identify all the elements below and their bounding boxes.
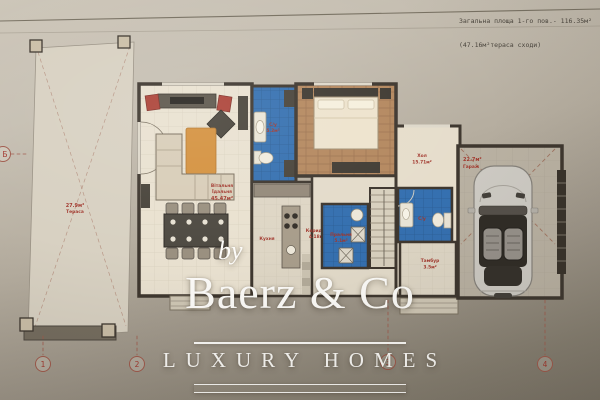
nightstand: [302, 88, 313, 99]
axis-number-1: 1: [41, 360, 46, 369]
seat: [483, 228, 502, 260]
bedroom: [296, 84, 396, 176]
side-mirror: [468, 208, 475, 213]
bath-top-area-label: 5.2м²: [266, 128, 279, 134]
axis-number-2: 2: [135, 360, 140, 369]
garage-area-label: 22.7м²: [463, 157, 482, 163]
dresser: [332, 162, 380, 173]
boiler-icon: [351, 209, 363, 221]
sink-icon: [256, 121, 264, 134]
terrace-name-label: Тераса: [66, 209, 84, 215]
garage: 22.7м² Гараж: [458, 146, 566, 298]
rear-deck: [484, 266, 522, 286]
windshield: [479, 206, 527, 215]
pillow: [348, 100, 374, 109]
terrace-post: [30, 40, 42, 52]
bath-top-name-label: С/у: [269, 122, 277, 128]
armchair-red: [217, 95, 232, 112]
watermark-double-underline: [194, 384, 406, 393]
kitchen-sink-icon: [287, 246, 296, 255]
pillow: [318, 100, 344, 109]
vestibule-area-label: 3.5м²: [423, 265, 436, 271]
watermark-brand: Baerz & Co: [185, 266, 415, 319]
living-area-label: 45.47м²: [211, 196, 233, 202]
closet: [284, 160, 295, 177]
hall-area-label: 15.71м²: [412, 160, 431, 166]
terrace-post: [118, 36, 130, 48]
watermark-by: by: [218, 236, 243, 266]
hall-name-label: Хол: [417, 153, 427, 159]
laundry-name-label: Пральня: [330, 232, 352, 238]
tv-icon: [170, 97, 204, 104]
garage-name-label: Гараж: [463, 164, 480, 170]
vestibule-name-label: Тамбур: [421, 257, 440, 264]
staircase: [370, 188, 398, 268]
car-top-view-icon: [468, 166, 538, 298]
toilet-icon: [433, 213, 444, 227]
sheet-note: Загальна площа 1-го пов.- 116.35м² (47.1…: [459, 1, 592, 65]
terrace-post: [102, 324, 115, 337]
closet: [284, 90, 295, 107]
laundry-area-label: 5.1м²: [334, 238, 347, 244]
laundry-room: Пральня 5.1м²: [322, 204, 368, 268]
kitchen-label: Кухня: [259, 236, 274, 242]
terrace: 27.9м² Тераса: [20, 36, 134, 340]
bathroom-hall: С/у: [398, 188, 452, 242]
bath-hall-label: С/у: [418, 216, 426, 222]
nightstand: [380, 88, 391, 99]
axis-number-4: 4: [543, 360, 548, 369]
photographed-floor-plan-sheet: 27.9м² Тераса: [0, 0, 600, 400]
watermark-divider-line: [194, 342, 406, 344]
living-label-2: Їдальня: [212, 188, 232, 195]
seat: [504, 228, 523, 260]
rug: [186, 128, 216, 174]
side-mirror: [531, 208, 538, 213]
headboard: [314, 88, 378, 97]
toilet-icon: [259, 153, 273, 164]
sheet-note-line1: Загальна площа 1-го пов.- 116.35м²: [459, 17, 592, 25]
armchair-red: [145, 94, 160, 111]
living-label-1: Вітальня: [211, 183, 233, 189]
terrace-post: [20, 318, 33, 331]
bathroom-top: С/у 5.2м²: [252, 86, 296, 182]
sink-icon: [403, 209, 410, 220]
fireplace: [141, 184, 150, 208]
axis-letter-left: Б: [2, 150, 7, 159]
terrace-area-label: 27.9м²: [66, 203, 85, 209]
kitchen-cabinets: [254, 184, 310, 197]
watermark-tagline: LUXURY HOMES: [153, 348, 447, 373]
cabinet: [238, 96, 248, 130]
sheet-note-line2: (47.16м²тераса сходи): [459, 41, 592, 49]
